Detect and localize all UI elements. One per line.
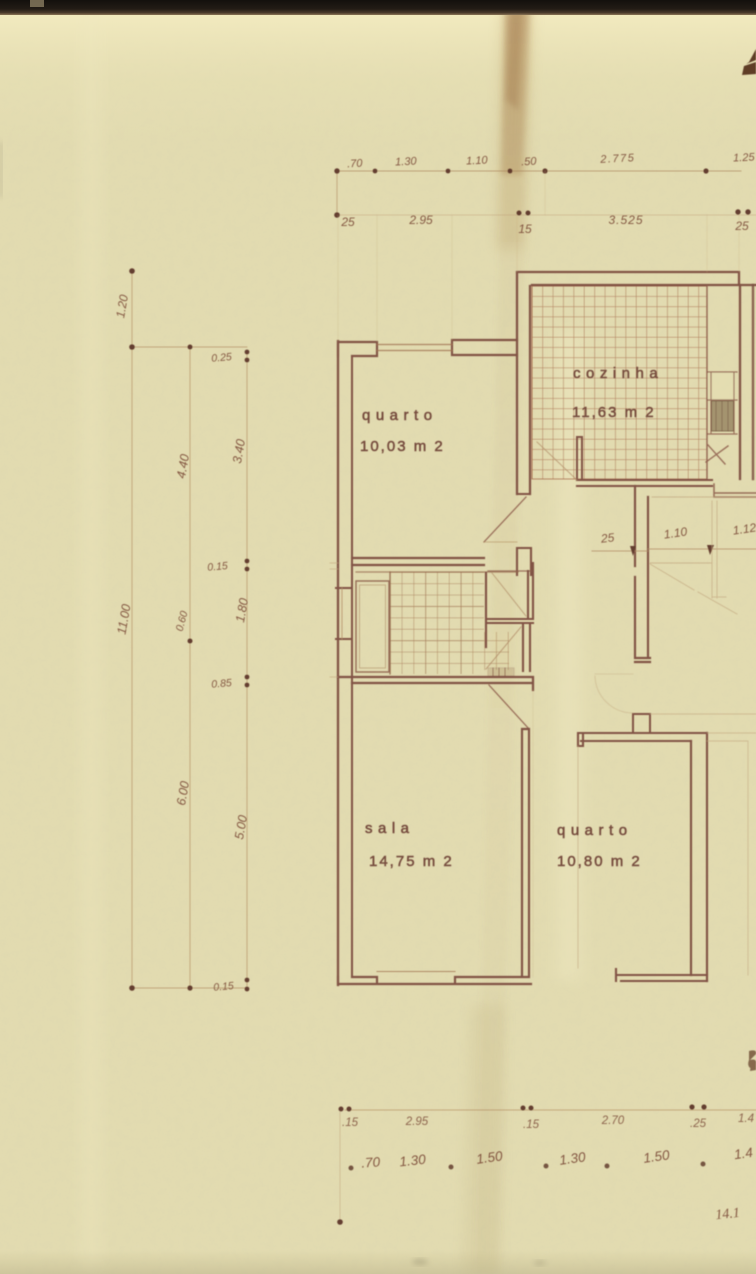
svg-text:.50: .50: [521, 156, 538, 169]
svg-text:.15: .15: [342, 1117, 359, 1129]
svg-text:1.4: 1.4: [738, 1113, 754, 1125]
svg-text:1.4: 1.4: [733, 1145, 754, 1162]
svg-text:quarto: quarto: [362, 407, 438, 424]
svg-text:sala: sala: [365, 820, 415, 837]
svg-text:10,03 m 2: 10,03 m 2: [360, 438, 445, 455]
svg-text:1.25: 1.25: [733, 151, 756, 164]
svg-text:3.525: 3.525: [608, 213, 643, 227]
svg-text:14,75 m 2: 14,75 m 2: [369, 853, 454, 870]
svg-text:10,80 m 2: 10,80 m 2: [557, 853, 642, 870]
svg-text:15: 15: [518, 222, 532, 236]
svg-text:.15: .15: [523, 1119, 540, 1131]
svg-text:1.30: 1.30: [395, 155, 418, 168]
svg-text:2.95: 2.95: [408, 213, 433, 227]
svg-text:0.15: 0.15: [213, 980, 235, 994]
svg-text:2.775: 2.775: [599, 152, 636, 166]
svg-text:.25: .25: [690, 1118, 707, 1130]
svg-text:1.10: 1.10: [466, 154, 489, 167]
svg-text:2.95: 2.95: [405, 1116, 429, 1128]
svg-text:25: 25: [599, 530, 615, 545]
svg-text:25: 25: [734, 219, 749, 233]
svg-text:.70: .70: [347, 158, 364, 171]
svg-text:11,63 m 2: 11,63 m 2: [572, 404, 656, 421]
svg-text:.70: .70: [361, 1154, 381, 1170]
svg-text:0.85: 0.85: [211, 677, 233, 691]
svg-text:quarto: quarto: [557, 822, 633, 839]
svg-text:25: 25: [340, 215, 355, 229]
svg-text:0.25: 0.25: [211, 351, 233, 365]
svg-text:cozinha: cozinha: [573, 365, 663, 382]
svg-text:0.15: 0.15: [207, 560, 229, 574]
svg-text:14.1: 14.1: [715, 1206, 741, 1223]
svg-text:1.30: 1.30: [399, 1152, 427, 1170]
svg-text:2.70: 2.70: [601, 1115, 625, 1127]
